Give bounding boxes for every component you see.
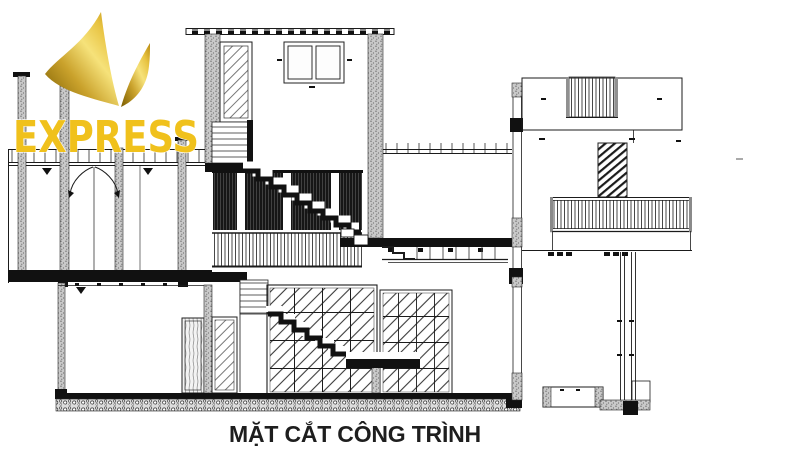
garden-wall-and-footing xyxy=(543,381,650,415)
stair-railing-elevation xyxy=(382,247,508,263)
door-post xyxy=(204,285,212,393)
ground-left-wall xyxy=(58,283,65,393)
elevation-right xyxy=(522,77,743,415)
terrace-rail-band xyxy=(383,143,512,154)
ground-stair-treads xyxy=(240,280,268,314)
brand-name: EXPRESS xyxy=(13,112,199,163)
screenshot: EXPRESS MẶT CẮT CÔNG TRÌNH xyxy=(0,0,800,463)
glass-curtain-wall-2 xyxy=(380,290,452,395)
penthouse-double-window xyxy=(277,42,352,88)
ground-floor xyxy=(55,280,522,411)
textured-pier xyxy=(598,143,627,197)
glazed-door xyxy=(212,317,237,393)
slender-columns xyxy=(617,252,636,400)
door-swing-arcs xyxy=(68,166,140,278)
balcony-railing xyxy=(550,197,692,232)
brand-logo: EXPRESS xyxy=(0,0,220,165)
penthouse-glass-panel xyxy=(220,42,252,122)
stair-balustrade-band xyxy=(212,233,362,267)
mid-level-stair-hall xyxy=(212,143,522,267)
drawing-caption: MẶT CẮT CÔNG TRÌNH xyxy=(229,421,481,448)
upper-floor-slab xyxy=(8,270,212,282)
wood-door xyxy=(182,318,204,393)
butterfly-logo-icon xyxy=(45,12,150,107)
stray-mark xyxy=(736,158,743,160)
penthouse-right-wall xyxy=(368,34,383,238)
left-column-b xyxy=(115,148,123,272)
roof-parapet xyxy=(522,77,682,130)
